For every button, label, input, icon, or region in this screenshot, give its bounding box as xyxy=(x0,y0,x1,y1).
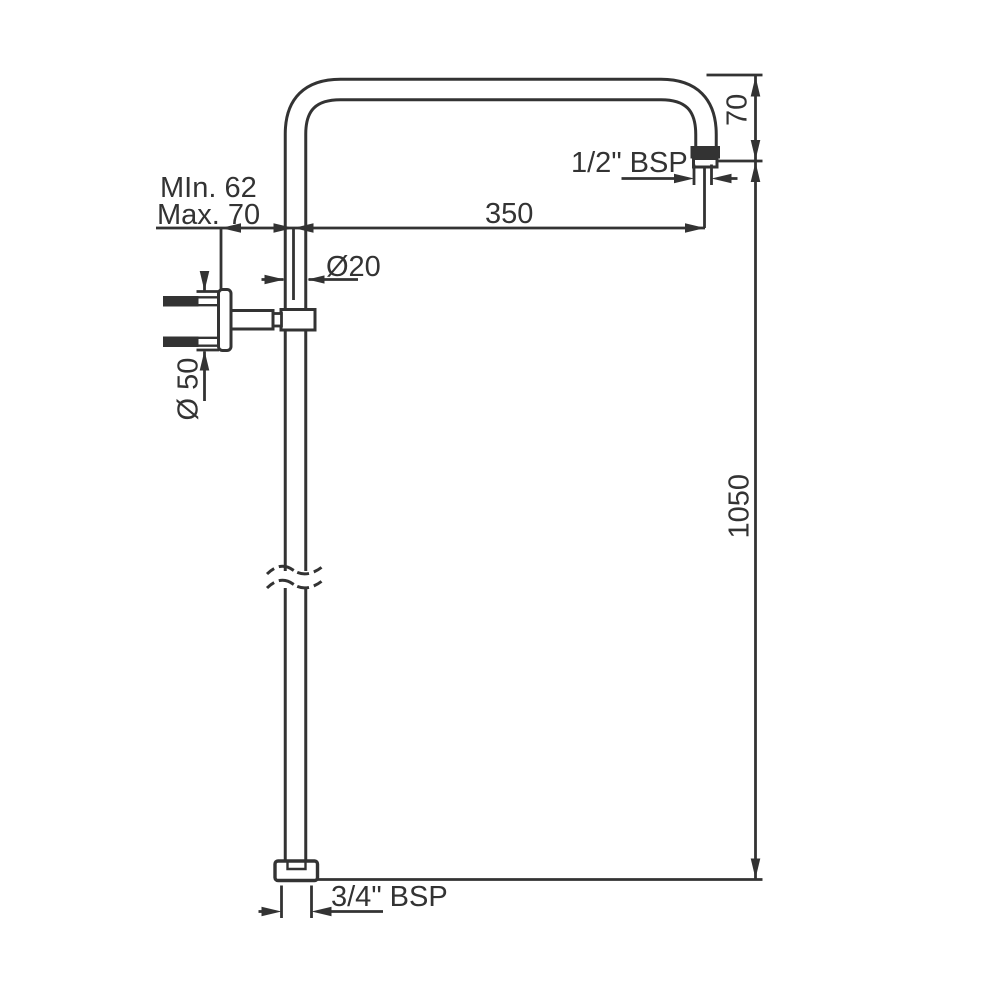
arrowhead xyxy=(751,859,761,879)
wall-bracket-arm xyxy=(231,311,274,330)
mounting-screw-bottom xyxy=(163,337,219,348)
pipe-clamp xyxy=(281,310,315,331)
dimension-bottom-thread: 3/4" BSP xyxy=(259,881,448,918)
dimension-arm-drop-and-riser-height: 70 1050 xyxy=(707,75,763,879)
arrowhead xyxy=(751,77,761,97)
dimension-wall-offset-and-arm-length: MIn. 62 Max. 70 350 xyxy=(156,167,705,300)
arrowhead xyxy=(265,275,285,285)
dimension-pipe-diameter: Ø20 xyxy=(262,251,381,284)
thread-band xyxy=(691,146,721,159)
arrowhead xyxy=(200,271,210,291)
outlet-collar xyxy=(694,159,718,168)
top-thread-label: 1/2" BSP xyxy=(571,147,688,179)
arrowhead xyxy=(751,162,761,182)
bottom-thread-label: 3/4" BSP xyxy=(331,881,448,913)
flange-diameter-label: Ø 50 xyxy=(173,358,205,421)
bottom-inlet-fitting xyxy=(275,861,318,881)
pipe-diameter-label: Ø20 xyxy=(326,251,381,283)
technical-drawing-canvas: MIn. 62 Max. 70 350 Ø20 Ø 50 1/2" BSP xyxy=(0,0,1000,1000)
riser-height-label: 1050 xyxy=(724,474,756,539)
arrowhead xyxy=(712,174,732,184)
max-offset-label: Max. 70 xyxy=(157,199,260,231)
arrowhead xyxy=(751,140,761,160)
arm-length-label: 350 xyxy=(485,198,533,230)
screw-head-top xyxy=(163,296,199,307)
shower-riser-drawing: MIn. 62 Max. 70 350 Ø20 Ø 50 1/2" BSP xyxy=(0,0,1000,1000)
arrowhead xyxy=(312,907,332,917)
mounting-screw-top xyxy=(163,296,219,307)
arrowhead xyxy=(685,223,705,233)
wall-bracket-flange xyxy=(219,290,232,351)
arm-drop-label: 70 xyxy=(722,94,754,126)
arrowhead xyxy=(262,907,282,917)
inlet-nut xyxy=(275,861,318,881)
break-wave-bottom xyxy=(267,580,322,588)
top-outlet-thread-fitting xyxy=(691,146,721,167)
screw-head-bottom xyxy=(163,337,199,348)
pipe-break-symbol xyxy=(267,566,322,588)
